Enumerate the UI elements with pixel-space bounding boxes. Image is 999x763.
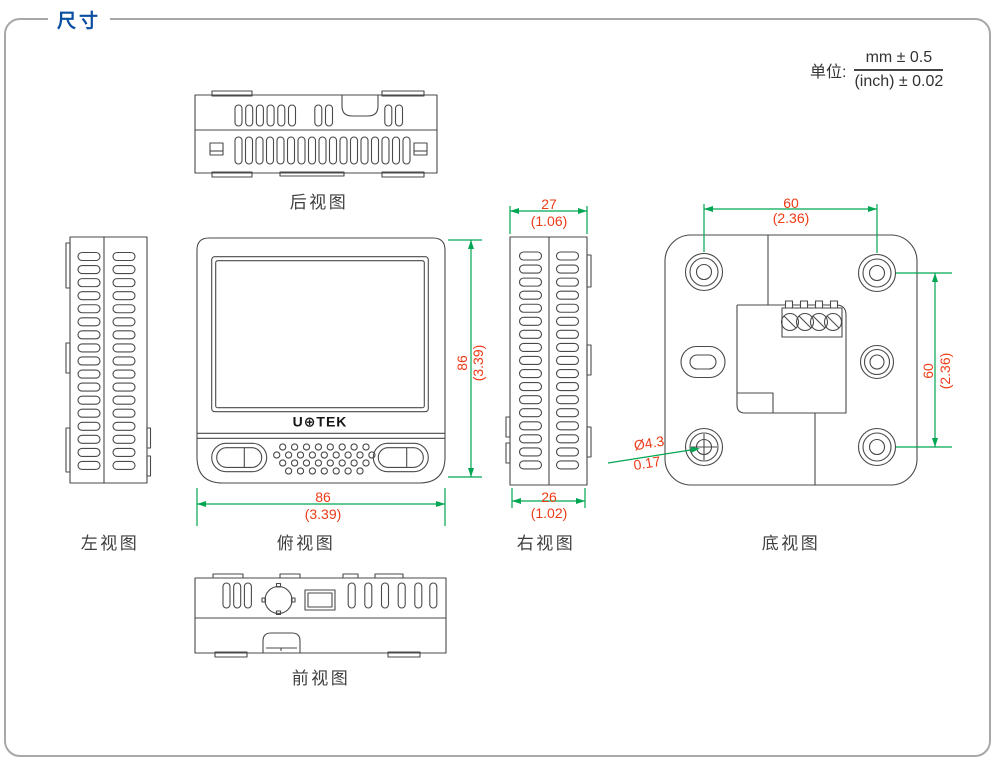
bottom-view-height-mm: 60 <box>921 363 935 379</box>
right-view-top-mm: 27 <box>541 197 557 211</box>
left-view-drawing <box>62 230 157 488</box>
unit-inch-tolerance: (inch) ± 0.02 <box>854 71 943 92</box>
front-view-drawing <box>190 565 452 660</box>
unit-mm-tolerance: mm ± 0.5 <box>854 48 943 71</box>
bottom-view-label: 底视图 <box>762 529 821 554</box>
dimension-diagram-page: { "title": "尺寸", "unit": { "label": "单位:… <box>0 0 999 763</box>
top-view-width-mm: 86 <box>315 490 331 504</box>
unit-label: 单位: <box>810 58 846 82</box>
top-view-height-mm: 86 <box>455 355 469 371</box>
right-view-drawing <box>495 190 605 515</box>
right-view-bottom-mm: 26 <box>541 490 557 504</box>
front-view-label: 前视图 <box>292 664 351 689</box>
right-view-label: 右视图 <box>517 529 576 554</box>
unit-fraction: mm ± 0.5 (inch) ± 0.02 <box>854 48 943 92</box>
top-view-height-inch: (3.39) <box>471 345 485 382</box>
bottom-view-width-inch: (2.36) <box>773 211 810 225</box>
top-view-width-inch: (3.39) <box>305 507 342 521</box>
top-view-label: 俯视图 <box>277 529 336 554</box>
top-view-drawing <box>190 230 490 530</box>
right-view-top-inch: (1.06) <box>531 214 568 228</box>
uotek-brand-logo: U⊕TEK <box>293 414 348 431</box>
bottom-view-height-inch: (2.36) <box>938 353 952 390</box>
bottom-view-width-mm: 60 <box>783 196 799 210</box>
section-title: 尺寸 <box>48 6 110 33</box>
left-view-label: 左视图 <box>81 529 140 554</box>
hole-diameter-inch: 0.17 <box>632 454 661 472</box>
unit-note: 单位: mm ± 0.5 (inch) ± 0.02 <box>810 48 943 92</box>
rear-view-label: 后视图 <box>290 188 349 213</box>
rear-view-drawing <box>190 85 446 180</box>
right-view-bottom-inch: (1.02) <box>531 506 568 520</box>
